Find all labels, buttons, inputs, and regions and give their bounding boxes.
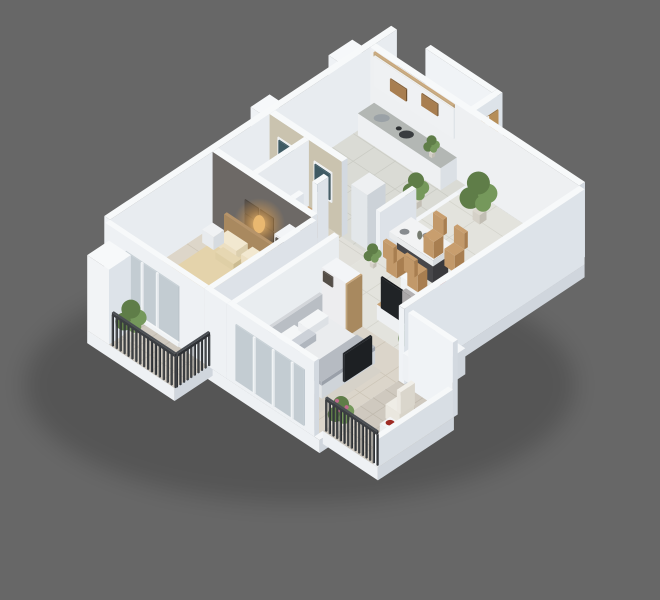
wall-balcony-lounge-ne: [453, 340, 458, 418]
rail-balcony-lounge-bar: [345, 412, 346, 444]
chair-1-back: [394, 245, 397, 263]
rail-balcony-lounge-bar: [370, 429, 371, 461]
rail-balcony-left-front-bar: [113, 315, 114, 347]
rail-balcony-lounge-bar: [369, 429, 370, 461]
rail-balcony-left-side-bar: [201, 339, 202, 371]
plant-balcony-left-foliage: [121, 300, 140, 319]
rail-balcony-left-front-bar: [139, 333, 140, 365]
rail-balcony-left-side-bar: [176, 356, 177, 388]
rail-balcony-left-side-bar: [188, 349, 189, 381]
chair-2-back: [414, 259, 417, 277]
rail-balcony-left-front-bar: [163, 349, 164, 381]
window-bedroom2-mullion-2: [272, 350, 274, 407]
rail-balcony-left-front-bar: [172, 354, 173, 386]
rail-balcony-lounge-bar: [347, 415, 348, 447]
wardrobe-bedroom2-shelf: [332, 277, 333, 288]
rail-balcony-left-front-bar: [136, 330, 137, 362]
rail-balcony-lounge-bar: [336, 407, 337, 439]
rail-balcony-left-side-bar: [197, 342, 198, 374]
rail-balcony-left-front-bar: [171, 354, 172, 386]
rail-balcony-lounge-bar: [374, 432, 375, 464]
rail-balcony-left-front-bar: [156, 343, 157, 375]
kitchen-cooktop: [399, 131, 414, 139]
rail-balcony-left-front-bar: [125, 323, 126, 355]
rail-balcony-left-side-bar: [198, 342, 199, 374]
kitchen-niche-2: [437, 104, 438, 117]
rail-balcony-left-front-bar: [147, 338, 148, 370]
rail-balcony-lounge-bar: [359, 422, 360, 454]
rail-balcony-lounge-bar: [354, 420, 355, 452]
plant-living-tall-foliage: [475, 196, 491, 212]
kitchen-sink: [374, 114, 390, 122]
art-clock-center: [253, 215, 265, 233]
rail-balcony-lounge-bar: [343, 412, 344, 444]
rail-balcony-left-side-bar: [177, 356, 178, 388]
rail-balcony-lounge-bar: [332, 405, 333, 437]
rail-balcony-left-front-bar: [117, 317, 118, 349]
rail-balcony-left-front-bar: [143, 336, 144, 368]
rail-balcony-lounge-bar: [337, 407, 338, 439]
rail-balcony-lounge-bar: [348, 415, 349, 447]
rail-balcony-left-front-bar: [159, 346, 160, 378]
rail-balcony-left-front-bar: [135, 330, 136, 362]
window-bedroom2-mullion-1: [255, 337, 256, 394]
wardrobe-bedroom2-panel: [346, 284, 348, 337]
rail-balcony-lounge-bar: [330, 403, 331, 435]
rail-balcony-left-side-bar: [187, 349, 188, 381]
rail-balcony-lounge-bar: [326, 400, 327, 432]
rail-balcony-lounge-bar: [329, 403, 330, 435]
plant-living-tall-foliage: [467, 172, 490, 195]
rail-balcony-lounge-bar: [351, 417, 352, 449]
rail-balcony-left-side-bar: [191, 347, 192, 379]
rail-balcony-left-side-bar: [209, 335, 210, 367]
rail-balcony-lounge-bar: [334, 405, 335, 437]
rail-balcony-left-side-bar: [208, 335, 209, 367]
window-bath2-glass: [330, 174, 331, 201]
rail-balcony-left-front-bar: [129, 325, 130, 357]
rail-balcony-lounge-bar: [376, 434, 377, 466]
rail-balcony-left-side-bar: [181, 354, 182, 386]
rail-balcony-lounge-bar: [363, 424, 364, 456]
rail-balcony-left-front-bar: [112, 315, 113, 347]
rail-balcony-left-front-bar: [144, 336, 145, 368]
rail-balcony-left-side-bar: [190, 347, 191, 379]
rail-balcony-left-side-bar: [202, 339, 203, 371]
rail-balcony-left-side-bar: [179, 354, 180, 386]
kitchen-pot: [396, 126, 402, 130]
rail-balcony-lounge-bar: [373, 432, 374, 464]
rail-balcony-lounge-bar: [356, 420, 357, 452]
rail-balcony-lounge-bar: [378, 434, 379, 466]
window-master-glass: [178, 286, 179, 343]
rail-balcony-left-front-bar: [155, 343, 156, 375]
rail-balcony-left-front-bar: [167, 351, 168, 383]
plant-dining-foliage: [371, 255, 379, 263]
window-bath2-frame: [332, 172, 333, 203]
rail-balcony-lounge-bar: [367, 427, 368, 459]
rail-balcony-left-front-bar: [127, 325, 128, 357]
rail-balcony-left-front-bar: [132, 328, 133, 360]
armchair-back: [397, 390, 401, 415]
rail-balcony-left-side-bar: [205, 337, 206, 369]
rail-balcony-left-front-bar: [121, 320, 122, 352]
kitchen-niche-1: [406, 89, 407, 102]
window-bedroom2-mullion-3: [291, 362, 293, 419]
dining-vase: [417, 231, 422, 240]
rail-balcony-left-front-bar: [116, 317, 117, 349]
floor-plan-render: [0, 0, 660, 600]
rail-balcony-left-front-bar: [120, 320, 121, 352]
column-balcony-left: [87, 255, 109, 345]
tv-bedroom2: [343, 353, 345, 382]
rail-balcony-left-front-bar: [140, 333, 141, 365]
window-bedroom2-mullion-3: [293, 363, 294, 420]
rail-balcony-lounge-bar: [325, 400, 326, 432]
window-master-mullion-2: [156, 273, 158, 330]
rail-balcony-left-side-bar: [206, 337, 207, 369]
rail-balcony-left-front-bar: [152, 341, 153, 373]
rail-balcony-left-front-bar: [151, 341, 152, 373]
chair-3-back: [443, 217, 447, 235]
screenshot-background: [0, 0, 660, 600]
rail-balcony-left-side-bar: [184, 351, 185, 383]
rail-balcony-lounge-bar: [352, 417, 353, 449]
rail-balcony-left-side-bar: [183, 351, 184, 383]
kitchen-upper-cabinets: [454, 108, 455, 139]
rail-balcony-lounge-bar: [340, 410, 341, 442]
rail-balcony-lounge-bar: [365, 427, 366, 459]
rail-balcony-left-side-bar: [194, 344, 195, 376]
fridge: [351, 184, 367, 250]
plant-kitchen-counter-foliage: [430, 146, 437, 153]
wall-bathroom-tile: [342, 158, 348, 237]
wardrobe-bedroom2-panel: [347, 275, 362, 337]
rail-balcony-left-front-bar: [174, 356, 175, 388]
plant-dining-foliage: [367, 243, 378, 254]
plant-kitchen-foliage: [408, 172, 424, 188]
chair-4-back: [464, 231, 468, 249]
rail-balcony-lounge-bar: [341, 410, 342, 442]
rail-balcony-left-front-bar: [131, 328, 132, 360]
rail-balcony-left-front-bar: [168, 351, 169, 383]
wall-bedroom2-sw: [314, 358, 319, 436]
plate-1: [400, 229, 410, 235]
plant-kitchen-counter-foliage: [427, 135, 437, 145]
rail-balcony-left-side-bar: [195, 344, 196, 376]
rail-balcony-left-front-bar: [124, 323, 125, 355]
rail-balcony-lounge-bar: [362, 424, 363, 456]
rail-balcony-left-front-bar: [148, 338, 149, 370]
rail-balcony-left-front-bar: [164, 349, 165, 381]
window-bedroom2-glass: [304, 369, 305, 426]
rail-balcony-left-front-bar: [160, 346, 161, 378]
window-master-mullion-2: [158, 273, 159, 330]
window-bedroom2-mullion-1: [253, 337, 255, 394]
rail-balcony-lounge-bar: [358, 422, 359, 454]
window-bedroom2-mullion-2: [274, 350, 275, 407]
